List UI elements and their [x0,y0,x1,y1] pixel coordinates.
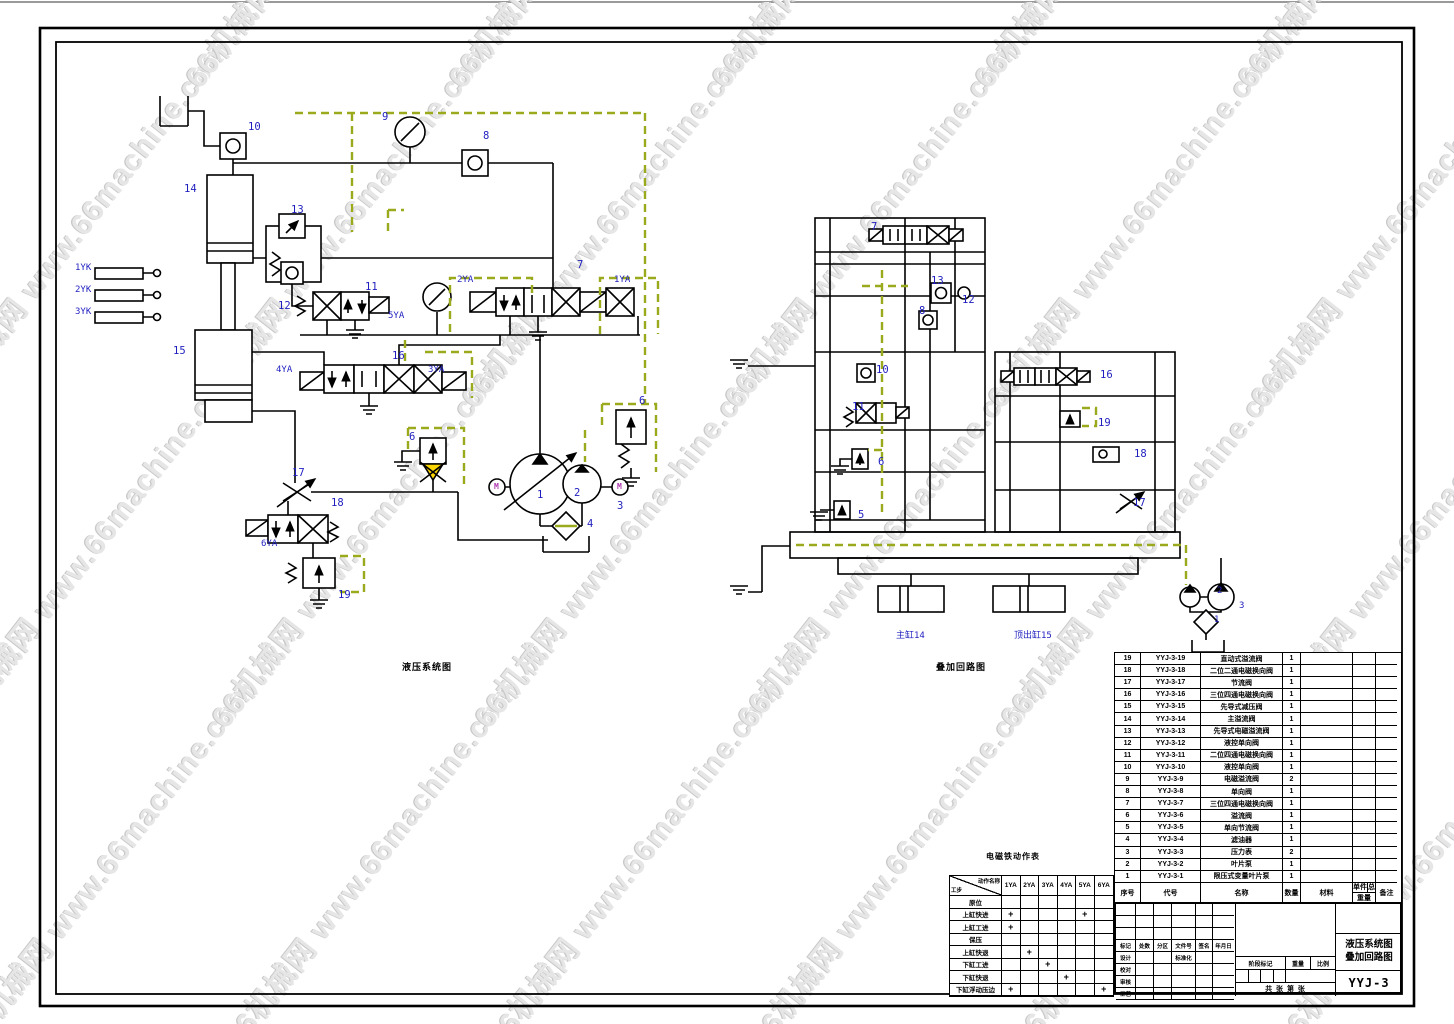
hydraulic-system-diagram [95,96,646,608]
action-mark-cell [1039,984,1058,997]
parts-list-cell [1376,701,1397,713]
parts-list-row: 5YYJ-3-5单向节流阀1 [1115,822,1401,834]
parts-list-cell [1376,653,1397,665]
action-mark-cell: + [1058,971,1077,984]
parts-list-cell: 17 [1115,677,1141,689]
parts-list-row: 3YYJ-3-3压力表2 [1115,847,1401,859]
tb-empty-grid [1116,904,1235,940]
parts-list-cell [1301,871,1353,883]
drawing-number: YYJ-3 [1336,971,1402,994]
parts-list-cell: 2 [1283,847,1301,859]
action-mark-cell [1021,896,1040,909]
parts-list-cell: YYJ-3-17 [1141,677,1201,689]
parts-list-header-row: 序号代号名称数量材料单件总计重量备注 [1115,883,1401,903]
action-mark-cell [1058,959,1077,972]
parts-list-cell: YYJ-3-7 [1141,798,1201,810]
parts-list-cell [1353,738,1376,750]
tb-role-label: 设计 [1116,952,1136,964]
action-mark-cell [1095,909,1114,922]
action-mark-cell [1039,909,1058,922]
action-step-name: 上缸工进 [950,921,1002,934]
action-mark-cell: + [1002,984,1021,997]
parts-list-cell: YYJ-3-13 [1141,726,1201,738]
parts-list-cell [1353,859,1376,871]
parts-list-cell [1301,859,1353,871]
parts-list-cell: 1 [1283,701,1301,713]
parts-list-row: 4YYJ-3-4滤油器1 [1115,834,1401,846]
parts-list-cell [1376,859,1397,871]
tb-empty-cell [1172,964,1196,976]
parts-list-cell: 10 [1115,762,1141,774]
title-block-middle-zone: 阶段标记 重量 比例 共 张 第 张 [1236,904,1336,996]
parts-list-cell: 叶片泵 [1201,859,1283,871]
action-mark-cell [1002,896,1021,909]
parts-list-cell [1376,798,1397,810]
action-mark-cell [1058,946,1077,959]
tb-label-date: 年月日 [1213,940,1234,952]
action-table-row: 保压 [950,934,1113,947]
parts-list-cell [1301,798,1353,810]
action-mark-cell [1039,896,1058,909]
module-outline-dashed-left [295,113,658,592]
parts-list-cell [1353,665,1376,677]
action-mark-cell: + [1095,984,1114,997]
parts-list-cell: 1 [1283,665,1301,677]
parts-list-cell [1353,713,1376,725]
action-table-solenoid-header: 1YA [1002,876,1021,896]
tb-empty-cell [1116,904,1136,916]
action-step-name: 原位 [950,896,1002,909]
tb-empty-cell [1196,964,1213,976]
parts-list-cell: 先导式电磁溢流阀 [1201,726,1283,738]
parts-list-cell [1353,762,1376,774]
tb-role-label: 审核 [1116,976,1136,988]
action-mark-cell [1021,959,1040,972]
tb-blank-top [1336,904,1402,934]
action-mark-cell [1002,934,1021,947]
parts-list-cell [1301,689,1353,701]
parts-list-cell: 4 [1115,834,1141,846]
parts-list-cell [1376,847,1397,859]
parts-list-cell [1353,847,1376,859]
parts-list-cell [1353,774,1376,786]
parts-list-cell: YYJ-3-12 [1141,738,1201,750]
tb-empty-cell [1213,928,1234,940]
title-block: 标记 处数 分区 文件号 签名 年月日 设计标准化校对审核工艺 阶段标记 重量 … [1114,902,1402,994]
parts-list-cell [1376,810,1397,822]
parts-list-cell: 11 [1115,750,1141,762]
parts-list-cell: 1 [1283,738,1301,750]
drawing-title-line2: 叠加回路图 [1345,952,1393,965]
action-mark-cell: + [1076,909,1095,922]
parts-list-cell [1301,774,1353,786]
parts-list-cell: 单向阀 [1201,786,1283,798]
tb-empty-cell [1136,904,1154,916]
action-table-corner-cell: 动作名称工步 [950,876,1002,896]
parts-list-header-cell: 序号 [1115,883,1141,903]
tb-empty-cell [1213,916,1234,928]
parts-list-cell [1353,798,1376,810]
action-mark-cell [1002,946,1021,959]
parts-list-cell [1301,810,1353,822]
action-mark-cell [1076,971,1095,984]
parts-list-cell: YYJ-3-8 [1141,786,1201,798]
parts-list-cell: 1 [1283,834,1301,846]
tb-empty-cell [1154,904,1172,916]
tb-empty-cell [1196,916,1213,928]
parts-list-cell: 直动式溢流阀 [1201,653,1283,665]
parts-list-cell [1376,738,1397,750]
action-table-solenoid-header: 5YA [1076,876,1095,896]
parts-list-cell: 6 [1115,810,1141,822]
parts-list-cell [1353,834,1376,846]
parts-list-header-cell: 材料 [1301,883,1353,903]
parts-list-cell [1353,653,1376,665]
action-mark-cell [1002,959,1021,972]
tb-label-count: 处数 [1136,940,1154,952]
parts-list-cell: YYJ-3-14 [1141,713,1201,725]
parts-list-row: 18YYJ-3-18二位二通电磁换向阀1 [1115,665,1401,677]
action-mark-cell [1076,946,1095,959]
parts-list-cell: 单向节流阀 [1201,822,1283,834]
action-mark-cell [1058,896,1077,909]
tb-empty-cell [1136,988,1154,1000]
tb-weight-label: 重量 [1286,957,1311,969]
action-mark-cell [1095,971,1114,984]
tb-empty-cell [1196,976,1213,988]
parts-list-cell: 1 [1283,822,1301,834]
tb-label-mark: 标记 [1116,940,1136,952]
parts-list-row: 13YYJ-3-13先导式电磁溢流阀1 [1115,726,1401,738]
action-step-name: 下缸快退 [950,971,1002,984]
tb-empty-cell [1213,904,1234,916]
tb-empty-cell [1154,964,1172,976]
parts-list-cell: 15 [1115,701,1141,713]
action-table-row: 下缸工进+ [950,959,1113,972]
action-mark-cell [1095,959,1114,972]
parts-list-cell: 18 [1115,665,1141,677]
tb-label-fileno: 文件号 [1172,940,1196,952]
parts-list-cell [1301,847,1353,859]
parts-list-row: 6YYJ-3-6溢流阀1 [1115,810,1401,822]
tb-role-label: 校对 [1116,964,1136,976]
action-mark-cell [1039,934,1058,947]
tb-empty-cell [1154,952,1172,964]
parts-list-cell [1353,750,1376,762]
parts-list-cell: 1 [1283,653,1301,665]
tb-empty-cell [1196,988,1213,1000]
action-mark-cell [1039,946,1058,959]
action-table-row: 上缸工进+ [950,921,1113,934]
parts-list-cell: YYJ-3-16 [1141,689,1201,701]
action-mark-cell: + [1021,946,1040,959]
tb-standard-label: 标准化 [1172,952,1196,964]
parts-list-cell: 1 [1283,726,1301,738]
parts-list-cell: 溢流阀 [1201,810,1283,822]
action-mark-cell [1095,946,1114,959]
tb-empty-cell [1172,976,1196,988]
parts-list-cell [1376,786,1397,798]
action-mark-cell [1095,921,1114,934]
tb-tick-row [1236,970,1335,983]
parts-list-cell [1376,677,1397,689]
parts-list-cell: YYJ-3-2 [1141,859,1201,871]
action-mark-cell [1002,971,1021,984]
electromagnet-action-table: 动作名称工步1YA2YA3YA4YA5YA6YA原位上缸快进++上缸工进+保压上… [949,875,1114,997]
parts-list-row: 2YYJ-3-2叶片泵1 [1115,859,1401,871]
drawing-sheet: 66机械网 www.66machine.com66机械网 www.66machi… [0,0,1454,1024]
parts-list-cell [1353,810,1376,822]
parts-list-cell: 三位四通电磁换向阀 [1201,689,1283,701]
parts-list-row: 15YYJ-3-15先导式减压阀1 [1115,701,1401,713]
tb-empty-cell [1213,952,1234,964]
tb-label-zone: 分区 [1154,940,1172,952]
title-block-signature-zone: 标记 处数 分区 文件号 签名 年月日 设计标准化校对审核工艺 [1116,904,1236,996]
tb-empty-cell [1136,928,1154,940]
tb-empty-cell [1213,964,1234,976]
action-mark-cell: + [1002,909,1021,922]
parts-list-row: 8YYJ-3-8单向阀1 [1115,786,1401,798]
tb-empty-cell [1172,916,1196,928]
parts-list-cell: 压力表 [1201,847,1283,859]
tb-scale-label: 比例 [1311,957,1335,969]
tb-empty-cell [1172,904,1196,916]
parts-list-cell: 1 [1283,786,1301,798]
parts-list-cell: 16 [1115,689,1141,701]
tb-empty-cell [1154,976,1172,988]
tb-empty-cell [1196,904,1213,916]
parts-list-weight-header: 单件总计重量 [1353,883,1376,903]
action-step-name: 下缸工进 [950,959,1002,972]
action-mark-cell [1039,921,1058,934]
parts-list-cell [1301,665,1353,677]
tb-empty-cell [1136,916,1154,928]
parts-list-cell [1353,822,1376,834]
parts-list-cell [1376,834,1397,846]
action-mark-cell [1021,984,1040,997]
tb-empty-cell [1154,916,1172,928]
tb-empty-cell [1196,952,1213,964]
parts-list-cell: 1 [1115,871,1141,883]
tb-empty-cell [1213,976,1234,988]
action-mark-cell [1058,984,1077,997]
title-block-title-zone: 液压系统图 叠加回路图 YYJ-3 [1336,904,1402,996]
parts-list-row: 10YYJ-3-10液控单向阀1 [1115,762,1401,774]
parts-list-cell: 节流阀 [1201,677,1283,689]
tb-sheet-label: 共 张 第 张 [1236,983,1335,994]
parts-list-cell [1376,750,1397,762]
parts-list-cell: 1 [1283,689,1301,701]
tb-empty-cell [1116,916,1136,928]
action-mark-cell [1021,934,1040,947]
action-step-name: 保压 [950,934,1002,947]
tb-empty-cell [1136,976,1154,988]
tb-empty-cell [1136,964,1154,976]
parts-list-cell: YYJ-3-1 [1141,871,1201,883]
action-table-row: 上缸快退+ [950,946,1113,959]
parts-list-cell [1301,738,1353,750]
action-table-solenoid-header: 3YA [1039,876,1058,896]
action-mark-cell: + [1002,921,1021,934]
parts-list-cell: YYJ-3-11 [1141,750,1201,762]
action-table-row: 下缸快退+ [950,971,1113,984]
action-mark-cell [1058,934,1077,947]
parts-list-cell [1376,774,1397,786]
parts-list-cell: 1 [1283,810,1301,822]
action-mark-cell [1039,971,1058,984]
parts-list-remark-header: 备注 [1376,883,1397,903]
parts-list-cell: YYJ-3-15 [1141,701,1201,713]
parts-list-row: 12YYJ-3-12液控单向阀1 [1115,738,1401,750]
parts-list-cell: YYJ-3-5 [1141,822,1201,834]
parts-list-table: 19YYJ-3-19直动式溢流阀118YYJ-3-18二位二通电磁换向阀117Y… [1114,652,1402,904]
action-mark-cell [1076,921,1095,934]
parts-list-header-cell: 名称 [1201,883,1283,903]
tb-signer-grid: 设计标准化校对审核工艺 [1116,952,1235,1000]
parts-list-cell [1376,689,1397,701]
parts-list-cell: 液控单向阀 [1201,738,1283,750]
parts-list-cell [1301,762,1353,774]
parts-list-cell: 1 [1283,750,1301,762]
action-mark-cell [1095,934,1114,947]
parts-list-cell [1353,701,1376,713]
parts-list-cell: YYJ-3-18 [1141,665,1201,677]
tb-stage-label: 阶段标记 [1236,957,1286,969]
parts-list-row: 9YYJ-3-9电磁溢流阀2 [1115,774,1401,786]
parts-list-cell [1301,750,1353,762]
action-mark-cell [1058,921,1077,934]
parts-list-row: 11YYJ-3-11二位四通电磁换向阀1 [1115,750,1401,762]
parts-list-cell: 二位二通电磁换向阀 [1201,665,1283,677]
parts-list-header-cell: 代号 [1141,883,1201,903]
parts-list-cell [1353,871,1376,883]
parts-list-cell: YYJ-3-3 [1141,847,1201,859]
parts-list-row: 7YYJ-3-7三位四通电磁换向阀1 [1115,798,1401,810]
action-mark-cell: + [1039,959,1058,972]
parts-list-cell: 1 [1283,713,1301,725]
parts-list-cell: 19 [1115,653,1141,665]
parts-list-cell [1353,726,1376,738]
parts-list-cell [1353,677,1376,689]
parts-list-cell [1301,726,1353,738]
action-table-row: 上缸快进++ [950,909,1113,922]
parts-list-cell: 13 [1115,726,1141,738]
parts-list-cell: 二位四通电磁换向阀 [1201,750,1283,762]
parts-list-cell [1301,713,1353,725]
action-mark-cell [1095,896,1114,909]
action-mark-cell [1021,971,1040,984]
parts-list-cell: 1 [1283,677,1301,689]
parts-list-cell [1353,786,1376,798]
parts-list-cell: 主溢流阀 [1201,713,1283,725]
action-mark-cell [1076,984,1095,997]
action-mark-cell [1058,909,1077,922]
parts-list-cell [1301,677,1353,689]
action-mark-cell [1076,934,1095,947]
drawing-title-line1: 液压系统图 [1345,939,1393,952]
parts-list-cell: 先导式减压阀 [1201,701,1283,713]
parts-list-cell: 液控单向阀 [1201,762,1283,774]
parts-list-cell: 1 [1283,762,1301,774]
parts-list-row: 17YYJ-3-17节流阀1 [1115,677,1401,689]
parts-list-cell: 5 [1115,822,1141,834]
parts-list-cell [1376,762,1397,774]
parts-list-cell: 电磁溢流阀 [1201,774,1283,786]
parts-list-cell [1376,822,1397,834]
tb-mark-row: 标记 处数 分区 文件号 签名 年月日 [1116,940,1235,952]
tb-empty-cell [1172,928,1196,940]
parts-list-cell: 1 [1283,871,1301,883]
parts-list-cell [1376,665,1397,677]
parts-list-cell: 12 [1115,738,1141,750]
parts-list-cell: 滤油器 [1201,834,1283,846]
tb-empty-cell [1213,988,1234,1000]
parts-list-cell: 9 [1115,774,1141,786]
parts-list-cell: 8 [1115,786,1141,798]
action-mark-cell [1076,959,1095,972]
action-step-name: 上缸快进 [950,909,1002,922]
parts-list-cell: 2 [1283,774,1301,786]
tb-empty-cell [1154,988,1172,1000]
parts-list-cell [1376,713,1397,725]
stacked-circuit-diagram [730,218,1234,652]
module-outline-dashed-right [796,270,1186,585]
parts-list-row: 1YYJ-3-1限压式变量叶片泵1 [1115,871,1401,883]
tb-label-sign: 签名 [1196,940,1213,952]
tb-empty-cell [1196,928,1213,940]
parts-list-cell: 限压式变量叶片泵 [1201,871,1283,883]
action-mark-cell [1076,896,1095,909]
parts-list-row: 19YYJ-3-19直动式溢流阀1 [1115,653,1401,665]
parts-list-cell [1376,871,1397,883]
tb-empty-cell [1154,928,1172,940]
parts-list-cell: YYJ-3-19 [1141,653,1201,665]
parts-list-cell: YYJ-3-4 [1141,834,1201,846]
action-table-solenoid-header: 2YA [1021,876,1040,896]
parts-list-cell [1353,689,1376,701]
parts-list-cell: 3 [1115,847,1141,859]
parts-list-cell [1301,834,1353,846]
parts-list-cell [1301,822,1353,834]
parts-list-cell: 三位四通电磁换向阀 [1201,798,1283,810]
tb-empty-cell [1136,952,1154,964]
tb-blank-cell [1236,904,1335,957]
drawing-title: 液压系统图 叠加回路图 [1336,934,1402,971]
parts-list-cell [1301,653,1353,665]
action-mark-cell [1021,909,1040,922]
action-table-solenoid-header: 6YA [1095,876,1114,896]
parts-list-header-cell: 数量 [1283,883,1301,903]
action-mark-cell [1021,921,1040,934]
action-table-solenoid-header: 4YA [1058,876,1077,896]
action-table-row: 下缸浮动压边++ [950,984,1113,997]
action-table-header-row: 动作名称工步1YA2YA3YA4YA5YA6YA [950,876,1113,896]
tb-empty-cell [1116,928,1136,940]
parts-list-cell: 1 [1283,798,1301,810]
parts-list-cell: YYJ-3-9 [1141,774,1201,786]
parts-list-cell: YYJ-3-6 [1141,810,1201,822]
parts-list-row: 14YYJ-3-14主溢流阀1 [1115,713,1401,725]
parts-list-cell [1301,786,1353,798]
parts-list-cell: 7 [1115,798,1141,810]
parts-list-cell: 14 [1115,713,1141,725]
parts-list-cell: 1 [1283,859,1301,871]
action-table-row: 原位 [950,896,1113,909]
tb-role-label: 工艺 [1116,988,1136,1000]
parts-list-cell [1376,726,1397,738]
parts-list-cell [1301,701,1353,713]
parts-list-cell: YYJ-3-10 [1141,762,1201,774]
